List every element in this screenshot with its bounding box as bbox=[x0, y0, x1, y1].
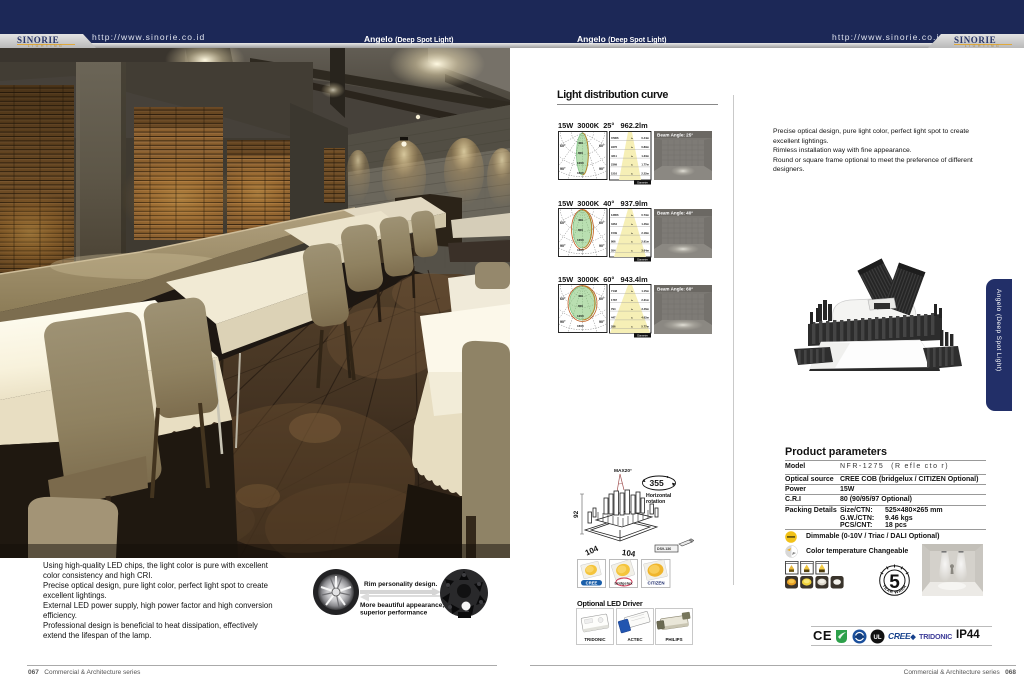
svg-text:1.77m: 1.77m bbox=[641, 162, 649, 166]
svg-text:1.33m: 1.33m bbox=[641, 153, 649, 157]
svg-text:866: 866 bbox=[611, 240, 616, 244]
svg-text:90°: 90° bbox=[599, 244, 605, 248]
svg-text:4211: 4211 bbox=[611, 153, 617, 157]
svg-text:60°: 60° bbox=[599, 144, 605, 148]
svg-text:286: 286 bbox=[611, 324, 616, 328]
svg-text:2.18m: 2.18m bbox=[641, 231, 649, 235]
svg-text:CITIZEN: CITIZEN bbox=[647, 580, 664, 585]
svg-text:°: ° bbox=[667, 476, 669, 482]
svg-text:MAX20°: MAX20° bbox=[614, 468, 632, 474]
svg-text:9476: 9476 bbox=[611, 145, 617, 149]
svg-text:2.22m: 2.22m bbox=[641, 171, 649, 175]
svg-text:Diameter: Diameter bbox=[637, 180, 648, 184]
svg-text:60°: 60° bbox=[560, 144, 566, 148]
svg-text:5.77m: 5.77m bbox=[641, 324, 649, 328]
svg-text:1.15m: 1.15m bbox=[641, 289, 649, 293]
svg-text:CREE: CREE bbox=[586, 580, 598, 585]
svg-text:800: 800 bbox=[578, 151, 583, 155]
svg-text:7148: 7148 bbox=[611, 289, 617, 293]
svg-text:794: 794 bbox=[611, 307, 616, 311]
svg-text:92: 92 bbox=[573, 510, 580, 518]
svg-text:Diameter: Diameter bbox=[637, 334, 648, 338]
svg-text:800: 800 bbox=[578, 228, 583, 232]
svg-text:355: 355 bbox=[650, 478, 664, 488]
svg-text:Diameter: Diameter bbox=[637, 258, 648, 262]
svg-text:superior performance: superior performance bbox=[360, 610, 428, 617]
svg-text:ACTEC: ACTEC bbox=[627, 637, 643, 642]
svg-text:Beam Angle: 60°: Beam Angle: 60° bbox=[657, 286, 693, 291]
svg-text:2.91m: 2.91m bbox=[641, 240, 649, 244]
svg-text:2.31m: 2.31m bbox=[641, 298, 649, 302]
svg-text:447: 447 bbox=[611, 316, 616, 320]
svg-text:60°: 60° bbox=[599, 297, 605, 301]
svg-text:0.73m: 0.73m bbox=[641, 213, 649, 217]
svg-text:More beautiful appearance,: More beautiful appearance, bbox=[360, 602, 444, 609]
svg-text:104: 104 bbox=[584, 544, 600, 558]
svg-text:2369: 2369 bbox=[611, 162, 617, 166]
svg-text:554: 554 bbox=[611, 248, 616, 252]
svg-text:1200: 1200 bbox=[577, 161, 584, 165]
svg-text:90°: 90° bbox=[560, 320, 566, 324]
svg-text:90°: 90° bbox=[599, 167, 605, 171]
svg-text:Beam Angle: 40°: Beam Angle: 40° bbox=[657, 210, 693, 215]
svg-text:400: 400 bbox=[578, 218, 583, 222]
svg-text:104: 104 bbox=[621, 548, 636, 559]
svg-text:37906: 37906 bbox=[611, 136, 619, 140]
svg-text:3.64m: 3.64m bbox=[641, 248, 649, 252]
svg-text:60°: 60° bbox=[560, 221, 566, 225]
svg-text:UL: UL bbox=[874, 635, 882, 641]
svg-text:Beam Angle: 25°: Beam Angle: 25° bbox=[657, 133, 693, 138]
svg-text:Rim personality design.: Rim personality design. bbox=[364, 581, 438, 588]
svg-text:bridgelux: bridgelux bbox=[614, 580, 633, 585]
svg-text:1200: 1200 bbox=[577, 238, 584, 242]
svg-text:0.89m: 0.89m bbox=[641, 145, 649, 149]
svg-text:rotation: rotation bbox=[646, 499, 665, 505]
svg-text:1516: 1516 bbox=[611, 171, 617, 175]
svg-text:1600: 1600 bbox=[577, 324, 584, 328]
svg-text:DS9-136: DS9-136 bbox=[657, 547, 671, 551]
svg-text:13856: 13856 bbox=[611, 213, 619, 217]
svg-text:1539: 1539 bbox=[611, 231, 617, 235]
svg-text:1600: 1600 bbox=[577, 171, 584, 175]
svg-text:60°: 60° bbox=[599, 221, 605, 225]
svg-text:90°: 90° bbox=[560, 167, 566, 171]
svg-text:0.44m: 0.44m bbox=[641, 136, 649, 140]
svg-text:4.62m: 4.62m bbox=[641, 316, 649, 320]
svg-text:60°: 60° bbox=[560, 297, 566, 301]
svg-text:3.46m: 3.46m bbox=[641, 307, 649, 311]
svg-text:400: 400 bbox=[578, 294, 583, 298]
svg-text:TRIDONIC: TRIDONIC bbox=[584, 637, 606, 642]
svg-text:PHILIPS: PHILIPS bbox=[665, 637, 682, 642]
svg-text:1787: 1787 bbox=[611, 298, 617, 302]
svg-text:400: 400 bbox=[578, 141, 583, 145]
svg-text:1200: 1200 bbox=[577, 314, 584, 318]
svg-text:90°: 90° bbox=[560, 244, 566, 248]
svg-text:90°: 90° bbox=[599, 320, 605, 324]
svg-text:800: 800 bbox=[578, 304, 583, 308]
svg-text:3464: 3464 bbox=[611, 222, 617, 226]
svg-text:1600: 1600 bbox=[577, 248, 584, 252]
svg-text:1.46m: 1.46m bbox=[641, 222, 649, 226]
